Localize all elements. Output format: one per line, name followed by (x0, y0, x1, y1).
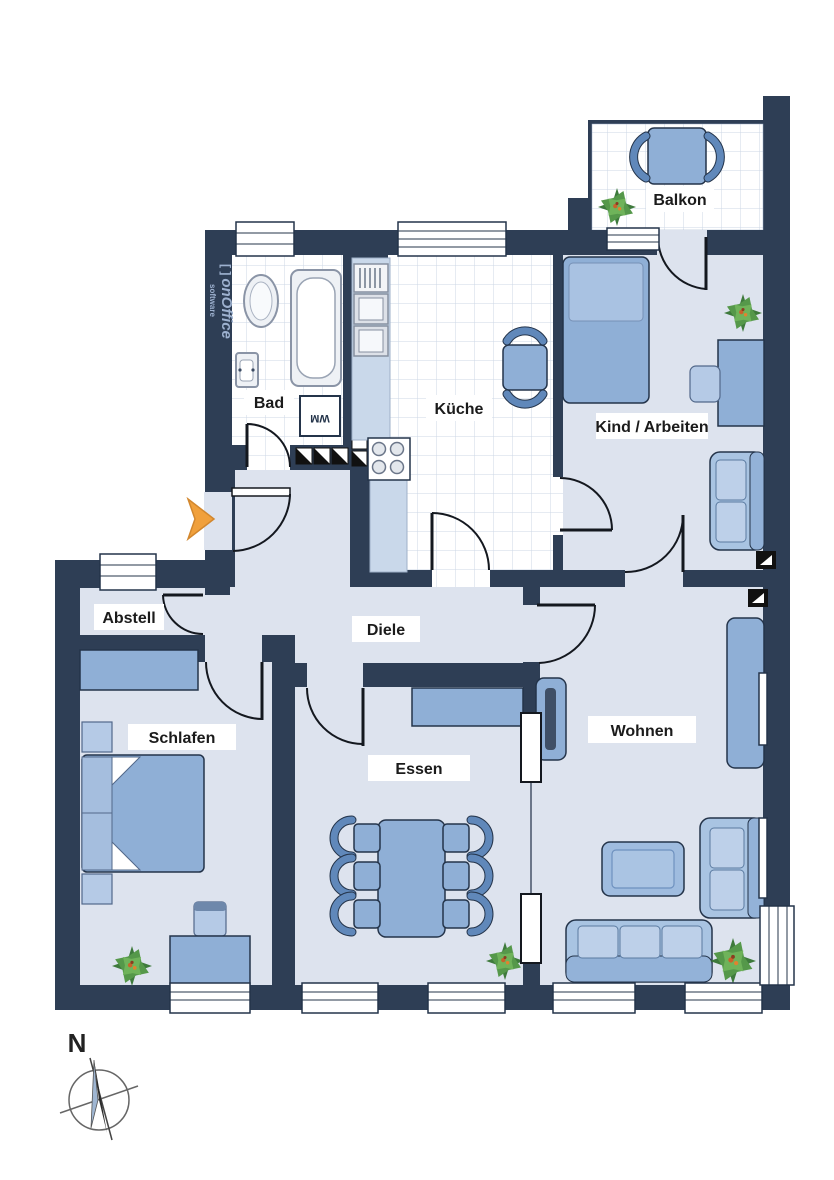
burner (373, 461, 386, 474)
room-label-wohnen: Wohnen (611, 723, 674, 740)
desk-kind (718, 340, 764, 426)
abstell-door-gap (205, 595, 230, 635)
window-east-slim-1 (759, 673, 767, 745)
chair-back (194, 902, 226, 911)
window-east-shutter (760, 906, 794, 985)
window-essen-2 (428, 983, 505, 1013)
window-kueche (398, 222, 506, 256)
window-bad (236, 222, 294, 256)
schlafen-door-gap (205, 635, 262, 662)
dishwasher (354, 264, 388, 292)
outside-notch (0, 196, 205, 560)
toilet-dot (238, 368, 241, 371)
armchair (700, 818, 764, 918)
room-label-kueche: Küche (435, 401, 484, 418)
window-east-slim-2 (759, 818, 767, 898)
room-label-abstell: Abstell (102, 610, 155, 627)
room-label-essen: Essen (395, 761, 442, 778)
room-label-diele: Diele (367, 622, 405, 639)
window-essen-1 (302, 983, 378, 1013)
compass-icon: N (60, 1028, 138, 1140)
kitchen-table (503, 345, 547, 390)
desk-schlafen (170, 936, 250, 984)
sink-basin (250, 282, 272, 320)
floor-plan-svg: WM (0, 0, 834, 1180)
washing-machine-label: WM (310, 412, 330, 424)
watermark-sub: software (208, 284, 217, 317)
nightstand (82, 722, 112, 752)
sofa-kind (710, 452, 764, 550)
dining-table (378, 820, 445, 937)
wohnen-door-gap (523, 605, 540, 662)
wardrobe (80, 650, 198, 690)
toilet-bowl (240, 360, 253, 381)
section-marker (756, 551, 776, 569)
burner (373, 443, 386, 456)
desk-chair-kind (690, 366, 720, 402)
balkon-right-wall (763, 96, 790, 232)
bed-kind-pillow (569, 263, 643, 321)
room-label-schlafen: Schlafen (149, 730, 216, 747)
window-schlafen (170, 983, 250, 1013)
sideboard (412, 688, 523, 726)
bathtub-basin (297, 278, 335, 378)
room-label-balkon: Balkon (653, 192, 706, 209)
essen-door-gap (307, 663, 363, 687)
oven-door (359, 298, 383, 320)
floor-plan: WM (0, 0, 834, 1180)
toilet-dot (251, 368, 254, 371)
balkon-rail-left (588, 120, 592, 230)
balkon-rail-top (588, 120, 765, 124)
window-wohnen-1 (553, 983, 635, 1013)
compass-north-label: N (68, 1028, 87, 1058)
kueche-door-gap (432, 570, 490, 587)
coffee-table (602, 842, 684, 896)
room-label-bad: Bad (254, 395, 284, 412)
sofa (566, 920, 712, 982)
watermark-brand: [ ]onOffice (218, 264, 235, 339)
burner (391, 461, 404, 474)
kueche-kind-door-gap (553, 477, 563, 535)
window-kind (607, 228, 659, 250)
room-label-kind-arbeiten: Kind / Arbeiten (595, 419, 708, 436)
bad-door-gap (247, 445, 290, 470)
burner (391, 443, 404, 456)
window-abstell (100, 554, 156, 590)
section-marker (748, 589, 768, 607)
wall-patch (262, 635, 295, 663)
balkon-table (648, 128, 706, 184)
balkon-door-gap (657, 230, 707, 255)
window-wohnen-2 (685, 983, 762, 1013)
oven-2-door (359, 330, 383, 352)
nightstand (82, 874, 112, 904)
